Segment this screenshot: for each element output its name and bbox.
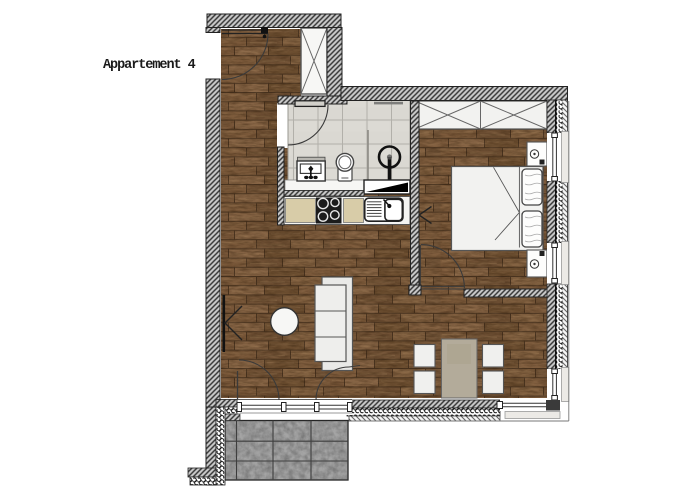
svg-text:Appartement 4: Appartement 4 [103,58,196,73]
